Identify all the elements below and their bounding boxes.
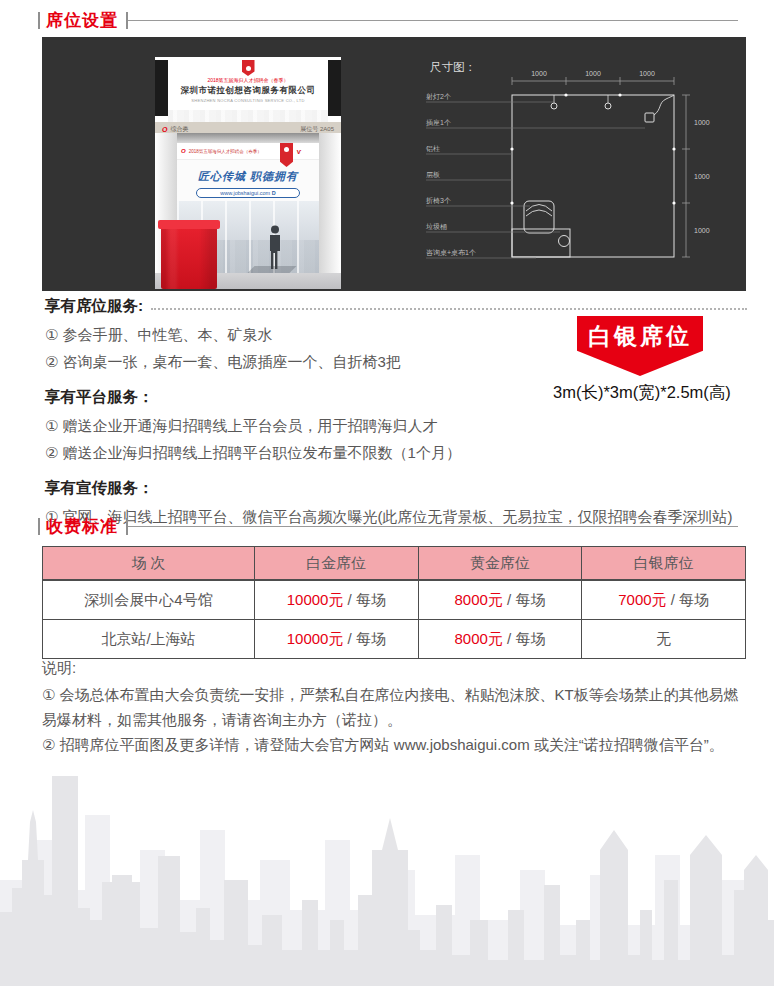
diagram-label-column: 铝柱 [425,145,440,153]
note-item-2: ② 招聘席位平面图及更多详情，请登陆大会官方网站 www.jobshaigui.… [42,732,748,757]
pricing-header-row: 场 次 白金席位 黄金席位 白银席位 [43,547,746,581]
note-item-1: ① 会场总体布置由大会负责统一安排，严禁私自在席位内接电、粘贴泡沫胶、KT板等会… [42,682,748,732]
price-cell: 10000元 / 每场 [255,580,419,620]
section-title: 收费标准 [46,515,118,538]
backwall-header-strip: O 2018第五届海归人才招聘会（春季） ⱱ [177,143,319,160]
header-rule [128,526,738,527]
platform-services-heading-text: 享有平台服务： [45,387,154,408]
official-website-link[interactable]: www.jobshaigui.com [394,736,530,753]
diagram-label-desk: 咨询桌+桌布1个 [426,249,476,257]
sign-skyline-watermark [168,110,328,122]
promo-services-heading-text: 享有宣传服务： [45,478,154,499]
red-cloth-table [161,225,217,289]
notes-heading: 说明: [42,655,748,680]
diagram-label-panel: 层板 [426,171,440,178]
col-header-venue: 场 次 [43,547,255,581]
person-silhouette [266,225,284,271]
header-left-tick [38,518,40,535]
booth-top-sign: 2018第五届海归人才招聘会（春季） 深圳市诺拉创想咨询服务有限公司 SHENZ… [155,60,341,122]
seat-services-heading-text: 享有席位服务: [45,296,143,317]
col-header-silver: 白银席位 [582,547,746,581]
dim-right-3: 1000 [694,227,710,234]
diagram-label-trash: 垃圾桶 [425,223,447,230]
promo-services-heading: 享有宣传服务： [45,478,747,499]
price-cell: 8000元 / 每场 [418,580,582,620]
website-d-logo: D [272,190,276,196]
diagram-label-spotlights: 射灯2个 [426,93,451,101]
table-row-beijing-shanghai: 北京站/上海站 10000元 / 每场 8000元 / 每场 无 [43,620,746,659]
col-header-platinum: 白金席位 [255,547,419,581]
shield-logo-icon [242,60,255,76]
section-header-pricing: 收费标准 [38,514,738,538]
flyer-page: 席位设置 2018第五届海归人才招聘会（春季） 深圳市诺拉创想咨询服务有限公司 … [0,0,774,986]
seat-dimensions-text: 3m(长)*3m(宽)*2.5m(高) [553,382,731,404]
booth-right-wall [319,133,341,273]
dimension-diagram: 尺寸图： 1000 1000 1000 1000 1000 1000 [424,51,738,283]
dim-right-1: 1000 [694,119,710,126]
price-cell: 8000元 / 每场 [418,620,582,659]
partner-logo-icon: ⱱ [297,148,301,155]
booth-website-pill: www.jobshaigui.com D [196,188,300,198]
price-cell: 10000元 / 每场 [255,620,419,659]
header-left-tick [38,12,40,29]
platform-service-item: ② 赠送企业海归招聘线上招聘平台职位发布量不限数（1个月） [45,443,747,462]
booth-website-text: www.jobshaigui.com [220,190,270,196]
seat-services-heading: 享有席位服务: [45,296,747,317]
sign-left-bar [155,60,168,116]
diagram-label-socket: 插座1个 [426,119,451,127]
venue-cell: 北京站/上海站 [43,620,255,659]
sign-right-bar [328,60,341,116]
diagram-label-chairs: 折椅3个 [426,197,451,205]
booth-company-name: 深圳市诺拉创想咨询服务有限公司 [155,85,341,97]
col-header-gold: 黄金席位 [418,547,582,581]
dotted-rule [151,308,747,310]
header-rule [128,20,738,21]
platform-service-item: ① 赠送企业开通海归招聘线上平台会员，用于招聘海归人才 [45,416,747,435]
diagram-title: 尺寸图： [430,61,476,73]
section-title: 席位设置 [46,9,118,32]
venue-cell: 深圳会展中心4号馆 [43,580,255,620]
city-skyline-footer [0,760,774,986]
pricing-table: 场 次 白金席位 黄金席位 白银席位 深圳会展中心4号馆 10000元 / 每场… [42,546,746,659]
dim-top-3: 1000 [639,70,655,77]
section-header-seat-setup: 席位设置 [38,8,738,32]
booth-showcase-panel: 2018第五届海归人才招聘会（春季） 深圳市诺拉创想咨询服务有限公司 SHENZ… [42,37,746,291]
brand-logo-icon: O [162,126,167,133]
booth-interior: O 2018第五届海归人才招聘会（春季） ⱱ 匠心传城 职德拥有 www.job… [155,133,341,289]
note-2-prefix: ② 招聘席位平面图及更多详情，请登陆大会官方网站 [42,736,394,753]
dim-right-2: 1000 [694,173,710,180]
notes-section: 说明: ① 会场总体布置由大会负责统一安排，严禁私自在席位内接电、粘贴泡沫胶、K… [42,655,748,757]
price-cell: 无 [582,620,746,659]
booth-slogan: 匠心传城 职德拥有 [177,169,319,184]
backwall-event-text: 2018第五届海归人才招聘会（春季） [189,149,262,154]
brand-logo-icon: O [181,148,186,154]
note-2-suffix: 或关注“诺拉招聘微信平台”。 [530,736,724,753]
booth-company-name-en: SHENZHEN NOCRA CONSULTING SERVICE CO., L… [155,98,341,103]
table-row-shenzhen: 深圳会展中心4号馆 10000元 / 每场 8000元 / 每场 7000元 /… [43,580,746,620]
booth-mockup-image: 2018第五届海归人才招聘会（春季） 深圳市诺拉创想咨询服务有限公司 SHENZ… [155,57,341,289]
shield-pendant-icon [280,143,293,167]
dim-top-2: 1000 [585,70,601,77]
booth-event-line: 2018第五届海归人才招聘会（春季） [155,77,341,83]
dim-top-1: 1000 [531,70,547,77]
price-cell: 7000元 / 每场 [582,580,746,620]
